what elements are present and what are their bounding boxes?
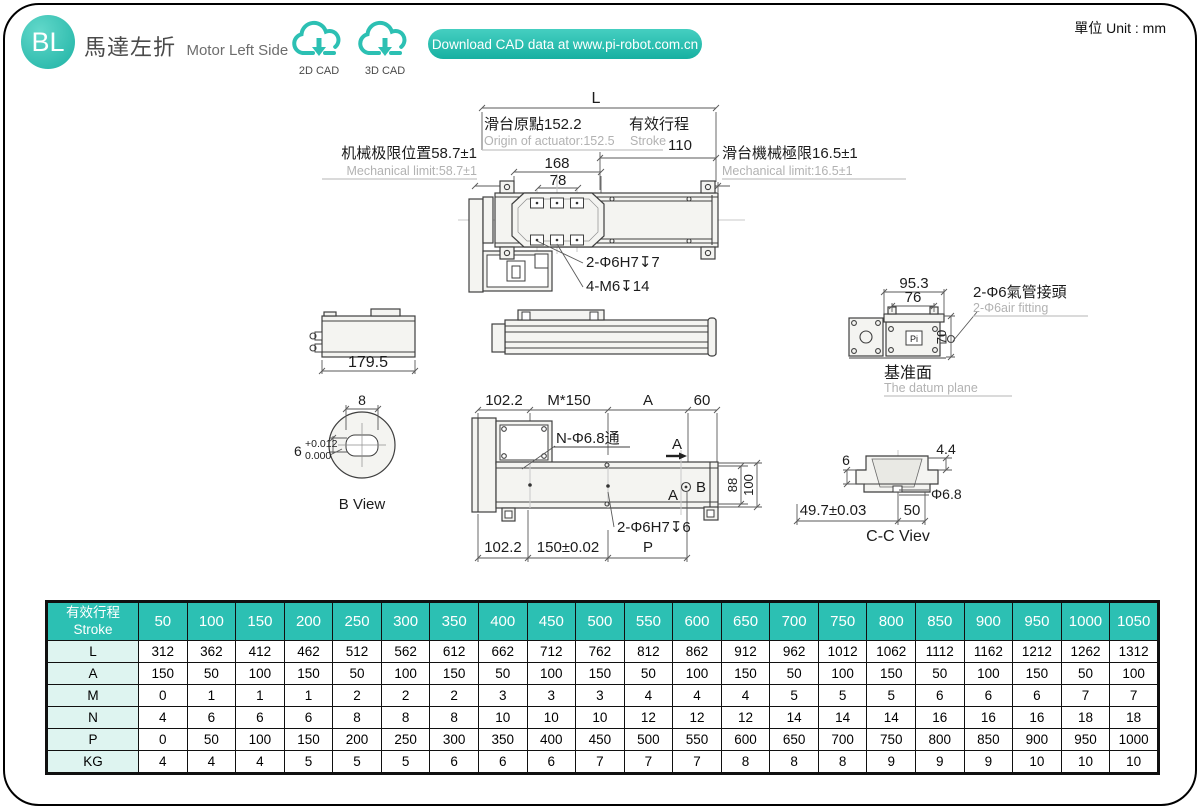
- table-cell: 100: [236, 663, 285, 685]
- dim-179-5: 179.5: [348, 354, 388, 371]
- cc-dim-6: 6: [842, 452, 850, 468]
- table-cell: 1: [236, 685, 285, 707]
- table-cell: 6: [284, 707, 333, 729]
- row-label: M: [47, 685, 139, 707]
- table-cell: 450: [576, 729, 625, 751]
- b-view-label: B View: [339, 496, 386, 513]
- center-rail: [505, 320, 716, 354]
- table-cell: 9: [964, 751, 1013, 774]
- cc-cavity: [872, 459, 922, 487]
- dim-L: L: [592, 90, 601, 107]
- stroke-header-cell: 100: [187, 602, 236, 641]
- dim-6-shaft: 6: [294, 443, 302, 459]
- table-cell: 950: [1061, 729, 1110, 751]
- table-cell: 5: [770, 685, 819, 707]
- hole-note-2: 2-Φ6H7↧6: [617, 519, 691, 536]
- table-cell: 4: [673, 685, 722, 707]
- cc-dim-phi: Φ6.8: [931, 486, 962, 502]
- table-cell: 862: [673, 641, 722, 663]
- download-cad-button[interactable]: Download CAD data at www.pi-robot.com.cn: [428, 29, 702, 59]
- table-cell: 550: [673, 729, 722, 751]
- table-cell: 0: [139, 685, 188, 707]
- table-cell: 6: [964, 685, 1013, 707]
- table-cell: 400: [527, 729, 576, 751]
- mech-left-en: Mechanical limit:58.7±1: [346, 164, 477, 178]
- table-cell: 100: [381, 663, 430, 685]
- table-cell: 5: [381, 751, 430, 774]
- table-cell: 1262: [1061, 641, 1110, 663]
- stroke-header-cell: 1000: [1061, 602, 1110, 641]
- table-row-l: L312362412462512562612662712762812862912…: [47, 641, 1159, 663]
- table-cell: 412: [236, 641, 285, 663]
- table-cell: 1112: [916, 641, 965, 663]
- table-cell: 4: [139, 707, 188, 729]
- table-cell: 2: [381, 685, 430, 707]
- stroke-header-cell: 50: [139, 602, 188, 641]
- cad-3d-label: 3D CAD: [354, 65, 416, 77]
- table-cell: 50: [1061, 663, 1110, 685]
- table-cell: 6: [478, 751, 527, 774]
- unit-label: 單位 Unit : mm: [1074, 18, 1166, 38]
- datum-en: The datum plane: [884, 381, 978, 395]
- side-fittings: [310, 332, 322, 352]
- table-cell: 850: [964, 729, 1013, 751]
- dim-88: 88: [725, 478, 740, 492]
- table-cell: 3: [527, 685, 576, 707]
- side-view-step: [324, 312, 336, 316]
- table-cell: 16: [964, 707, 1013, 729]
- stroke-header-cell: 800: [867, 602, 916, 641]
- table-cell: 150: [721, 663, 770, 685]
- table-cell: 600: [721, 729, 770, 751]
- table-cell: 500: [624, 729, 673, 751]
- table-cell: 9: [916, 751, 965, 774]
- table-cell: 562: [381, 641, 430, 663]
- table-cell: 100: [527, 663, 576, 685]
- dim-p: P: [643, 539, 653, 556]
- stroke-header-cell: 900: [964, 602, 1013, 641]
- table-cell: 8: [770, 751, 819, 774]
- dim-100: 100: [741, 474, 756, 496]
- side-view-hump: [371, 309, 400, 316]
- table-cell: 100: [818, 663, 867, 685]
- table-cell: 100: [1110, 663, 1159, 685]
- cc-center-hole: [893, 486, 902, 492]
- stroke-header-cell: 600: [673, 602, 722, 641]
- table-cell: 1012: [818, 641, 867, 663]
- table-cell: 150: [284, 663, 333, 685]
- table-cell: 14: [770, 707, 819, 729]
- table-cell: 150: [867, 663, 916, 685]
- table-cell: 12: [721, 707, 770, 729]
- table-cell: 3: [478, 685, 527, 707]
- table-cell: 3: [576, 685, 625, 707]
- row-label: P: [47, 729, 139, 751]
- end-view: Pi 76 95.3 70 2-Φ6氣管接頭 2-Φ6air fitting 基…: [849, 275, 1088, 396]
- table-cell: 1000: [1110, 729, 1159, 751]
- stroke-header-row: 有效行程 Stroke 5010015020025030035040045050…: [47, 602, 1159, 641]
- table-row-kg: KG444555666777888999101010: [47, 751, 1159, 774]
- page-title-cn: 馬達左折: [84, 35, 176, 60]
- series-badge: BL: [21, 15, 75, 69]
- origin-cn: 滑台原點152.2: [484, 116, 582, 133]
- tol-zero: 0.000: [305, 450, 331, 462]
- table-cell: 150: [576, 663, 625, 685]
- stroke-header-cn: 有效行程: [48, 605, 138, 621]
- stroke-header-cell: 950: [1013, 602, 1062, 641]
- page-title-en: Motor Left Side: [186, 42, 288, 59]
- origin-en: Origin of actuator:152.5: [484, 134, 615, 148]
- table-cell: 650: [770, 729, 819, 751]
- cc-view-label: C-C Viev: [866, 528, 930, 545]
- download-cad-label: Download CAD data at www.pi-robot.com.cn: [432, 37, 698, 52]
- row-label: N: [47, 707, 139, 729]
- top-view: L 滑台原點152.2 Origin of actuator:152.5 有效行…: [322, 90, 906, 295]
- table-cell: 612: [430, 641, 479, 663]
- table-row-a: A150501001505010015050100150501001505010…: [47, 663, 1159, 685]
- table-cell: 5: [333, 751, 382, 774]
- bolt-dot-1: [528, 483, 532, 487]
- cad-2d-download[interactable]: 2D CAD: [288, 20, 350, 77]
- table-cell: 150: [1013, 663, 1062, 685]
- table-cell: 6: [527, 751, 576, 774]
- table-cell: 12: [624, 707, 673, 729]
- table-row-n: N46668881010101212121414141616161818: [47, 707, 1159, 729]
- bottom-motor-plate: [472, 418, 496, 512]
- table-cell: 250: [381, 729, 430, 751]
- dim-102-2-top: 102.2: [485, 392, 523, 409]
- dim-150: 150±0.02: [537, 539, 599, 556]
- table-cell: 6: [430, 751, 479, 774]
- dim-a: A: [643, 392, 653, 409]
- stroke-header-cell: 850: [916, 602, 965, 641]
- table-cell: 900: [1013, 729, 1062, 751]
- table-cell: 1162: [964, 641, 1013, 663]
- tol-plus: +0.012: [305, 438, 338, 450]
- datum-cn: 基准面: [884, 364, 932, 382]
- stroke-header-cell: 700: [770, 602, 819, 641]
- stroke-header-cell: 500: [576, 602, 625, 641]
- hole-note: 2-Φ6H7↧7: [586, 254, 660, 271]
- table-cell: 312: [139, 641, 188, 663]
- stroke-header-cell: 350: [430, 602, 479, 641]
- b-view: 8 6 +0.012 0.000 B View: [294, 392, 395, 513]
- mech-right-cn: 滑台機械極限16.5±1: [722, 145, 858, 162]
- section-a-top: A: [672, 436, 682, 453]
- table-cell: 10: [576, 707, 625, 729]
- air-fitting-en: 2-Φ6air fitting: [973, 301, 1048, 315]
- motor-connector-pin: [512, 266, 520, 278]
- bolt-dot-2: [606, 484, 610, 488]
- table-cell: 4: [187, 751, 236, 774]
- table-cell: 100: [673, 663, 722, 685]
- table-cell: 4: [624, 685, 673, 707]
- stroke-header-cell: 450: [527, 602, 576, 641]
- rail-left-flange: [483, 197, 493, 243]
- table-cell: 50: [333, 663, 382, 685]
- table-cell: 18: [1061, 707, 1110, 729]
- center-slider-hole2: [590, 312, 598, 320]
- center-right-cap: [708, 318, 716, 356]
- stroke-table-body: L312362412462512562612662712762812862912…: [47, 641, 1159, 774]
- table-cell: 700: [818, 729, 867, 751]
- table-cell: 50: [916, 663, 965, 685]
- catalog-page: BL 馬達左折 Motor Left Side 2D CAD 3D CAD Do…: [0, 0, 1200, 809]
- stroke-header-corner: 有效行程 Stroke: [47, 602, 139, 641]
- stroke-header-cell: 300: [381, 602, 430, 641]
- table-cell: 50: [478, 663, 527, 685]
- cloud-download-icon: [290, 20, 348, 62]
- table-cell: 10: [1061, 751, 1110, 774]
- table-cell: 16: [1013, 707, 1062, 729]
- table-cell: 6: [187, 707, 236, 729]
- thread-note: 4-M6↧14: [586, 278, 649, 295]
- stroke-header-cell: 200: [284, 602, 333, 641]
- dim-8: 8: [358, 392, 366, 408]
- table-cell: 14: [818, 707, 867, 729]
- table-cell: 8: [333, 707, 382, 729]
- table-cell: 6: [1013, 685, 1062, 707]
- table-cell: 1: [187, 685, 236, 707]
- dim-95-3: 95.3: [899, 275, 928, 292]
- cc-dim-50: 50: [904, 502, 921, 519]
- table-cell: 4: [139, 751, 188, 774]
- table-cell: 812: [624, 641, 673, 663]
- mech-right-en: Mechanical limit:16.5±1: [722, 164, 853, 178]
- cad-3d-download[interactable]: 3D CAD: [354, 20, 416, 77]
- stroke-en: Stroke: [630, 134, 666, 148]
- stroke-header-cell: 550: [624, 602, 673, 641]
- dim-78: 78: [550, 172, 567, 189]
- datum-b-label: B: [696, 479, 706, 496]
- table-cell: 7: [1110, 685, 1159, 707]
- table-cell: 662: [478, 641, 527, 663]
- dim-60: 60: [694, 392, 711, 409]
- table-cell: 10: [478, 707, 527, 729]
- table-cell: 4: [236, 751, 285, 774]
- center-slider-hole: [522, 312, 530, 320]
- table-cell: 912: [721, 641, 770, 663]
- motor-cable-port: [535, 254, 548, 268]
- table-cell: 2: [430, 685, 479, 707]
- table-cell: 8: [381, 707, 430, 729]
- table-cell: 10: [1110, 751, 1159, 774]
- technical-drawing: L 滑台原點152.2 Origin of actuator:152.5 有效行…: [0, 85, 1200, 585]
- table-cell: 300: [430, 729, 479, 751]
- row-label: A: [47, 663, 139, 685]
- dim-m150: M*150: [547, 392, 590, 409]
- table-cell: 1062: [867, 641, 916, 663]
- table-cell: 12: [673, 707, 722, 729]
- table-cell: 2: [333, 685, 382, 707]
- cc-view: 6 4.4 Φ6.8 49.7±0.03 50 C-C Viev: [794, 441, 962, 545]
- table-cell: 7: [624, 751, 673, 774]
- table-cell: 350: [478, 729, 527, 751]
- dim-102-2-bottom: 102.2: [484, 539, 522, 556]
- table-cell: 14: [867, 707, 916, 729]
- table-cell: 50: [187, 729, 236, 751]
- cloud-download-icon: [356, 20, 414, 62]
- table-cell: 7: [576, 751, 625, 774]
- table-cell: 762: [576, 641, 625, 663]
- bottom-view: 102.2 M*150 A 60 N-Φ6.8通 A A B 88 100 2-…: [472, 392, 762, 562]
- table-cell: 50: [770, 663, 819, 685]
- end-flange: [849, 318, 883, 356]
- mech-left-cn: 机械极限位置58.7±1: [341, 145, 477, 162]
- table-cell: 16: [916, 707, 965, 729]
- stroke-header-cell: 150: [236, 602, 285, 641]
- table-cell: 50: [624, 663, 673, 685]
- stroke-table: 有效行程 Stroke 5010015020025030035040045050…: [45, 600, 1160, 775]
- stroke-header-en: Stroke: [48, 622, 138, 638]
- table-cell: 50: [187, 663, 236, 685]
- dim-110: 110: [668, 137, 692, 154]
- air-fitting-cn: 2-Φ6氣管接頭: [973, 284, 1067, 301]
- series-badge-label: BL: [31, 27, 64, 58]
- table-cell: 1312: [1110, 641, 1159, 663]
- table-cell: 18: [1110, 707, 1159, 729]
- row-label: KG: [47, 751, 139, 774]
- table-cell: 8: [818, 751, 867, 774]
- table-cell: 750: [867, 729, 916, 751]
- stroke-header-cell: 750: [818, 602, 867, 641]
- table-cell: 5: [284, 751, 333, 774]
- table-cell: 8: [430, 707, 479, 729]
- table-cell: 7: [1061, 685, 1110, 707]
- cad-2d-label: 2D CAD: [288, 65, 350, 77]
- table-cell: 10: [527, 707, 576, 729]
- table-cell: 7: [673, 751, 722, 774]
- dim-168: 168: [544, 155, 569, 172]
- table-cell: 4: [721, 685, 770, 707]
- stroke-cn: 有效行程: [629, 116, 689, 133]
- table-cell: 1: [284, 685, 333, 707]
- cc-dim-49-7: 49.7±0.03: [800, 502, 867, 519]
- table-cell: 800: [916, 729, 965, 751]
- table-cell: 150: [430, 663, 479, 685]
- table-cell: 150: [139, 663, 188, 685]
- side-view: 179.5: [310, 309, 418, 374]
- table-cell: 462: [284, 641, 333, 663]
- center-left-end: [492, 324, 505, 352]
- table-cell: 962: [770, 641, 819, 663]
- stroke-header-cell: 250: [333, 602, 382, 641]
- table-cell: 5: [818, 685, 867, 707]
- pi-logo: Pi: [910, 334, 918, 344]
- table-cell: 9: [867, 751, 916, 774]
- table-cell: 200: [333, 729, 382, 751]
- stroke-header-cell: 1050: [1110, 602, 1159, 641]
- table-cell: 6: [236, 707, 285, 729]
- page-title: 馬達左折 Motor Left Side: [84, 30, 288, 62]
- table-cell: 10: [1013, 751, 1062, 774]
- table-cell: 0: [139, 729, 188, 751]
- center-side-view: [492, 310, 716, 356]
- stroke-header-cell: 650: [721, 602, 770, 641]
- section-a-bottom: A: [668, 487, 678, 504]
- table-cell: 5: [867, 685, 916, 707]
- table-row-m: M011122233344455566677: [47, 685, 1159, 707]
- table-cell: 512: [333, 641, 382, 663]
- stroke-header-cell: 400: [478, 602, 527, 641]
- table-cell: 8: [721, 751, 770, 774]
- table-cell: 100: [236, 729, 285, 751]
- n-hole-note: N-Φ6.8通: [556, 430, 620, 447]
- bottom-motor-inner: [500, 425, 548, 460]
- table-cell: 712: [527, 641, 576, 663]
- table-row-p: P050100150200250300350400450500550600650…: [47, 729, 1159, 751]
- end-top-plate: [884, 314, 944, 322]
- cc-dim-4-4: 4.4: [936, 441, 956, 457]
- table-cell: 362: [187, 641, 236, 663]
- table-cell: 1212: [1013, 641, 1062, 663]
- motor-end-plate: [469, 199, 483, 292]
- side-view-body: [322, 316, 415, 357]
- table-cell: 6: [916, 685, 965, 707]
- table-cell: 150: [284, 729, 333, 751]
- row-label: L: [47, 641, 139, 663]
- dim-70: 70: [934, 330, 949, 344]
- table-cell: 100: [964, 663, 1013, 685]
